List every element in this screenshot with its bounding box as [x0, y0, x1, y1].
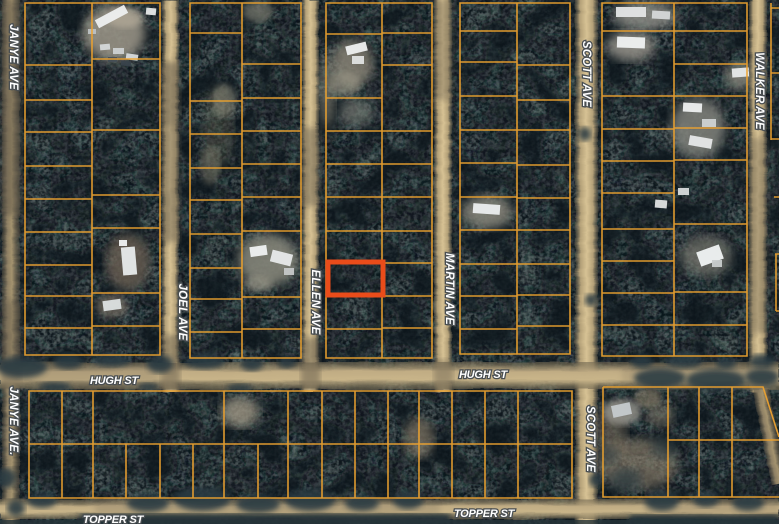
svg-text:ELLEN AVE: ELLEN AVE	[309, 269, 321, 334]
svg-text:SCOTT AVE: SCOTT AVE	[580, 41, 592, 107]
svg-text:JANYE AVE.: JANYE AVE.	[7, 386, 19, 455]
svg-text:JANYE AVE: JANYE AVE	[7, 24, 19, 90]
svg-text:TOPPER ST: TOPPER ST	[83, 514, 145, 524]
svg-text:HUGH ST: HUGH ST	[90, 375, 140, 387]
svg-text:JOEL AVE: JOEL AVE	[176, 284, 188, 341]
svg-text:TOPPER ST: TOPPER ST	[454, 508, 516, 520]
svg-text:SCOTT AVE: SCOTT AVE	[584, 406, 596, 472]
svg-text:HUGH ST: HUGH ST	[459, 369, 509, 381]
svg-text:WALKER AVE: WALKER AVE	[753, 52, 765, 130]
svg-text:MARTIN AVE: MARTIN AVE	[443, 253, 455, 325]
